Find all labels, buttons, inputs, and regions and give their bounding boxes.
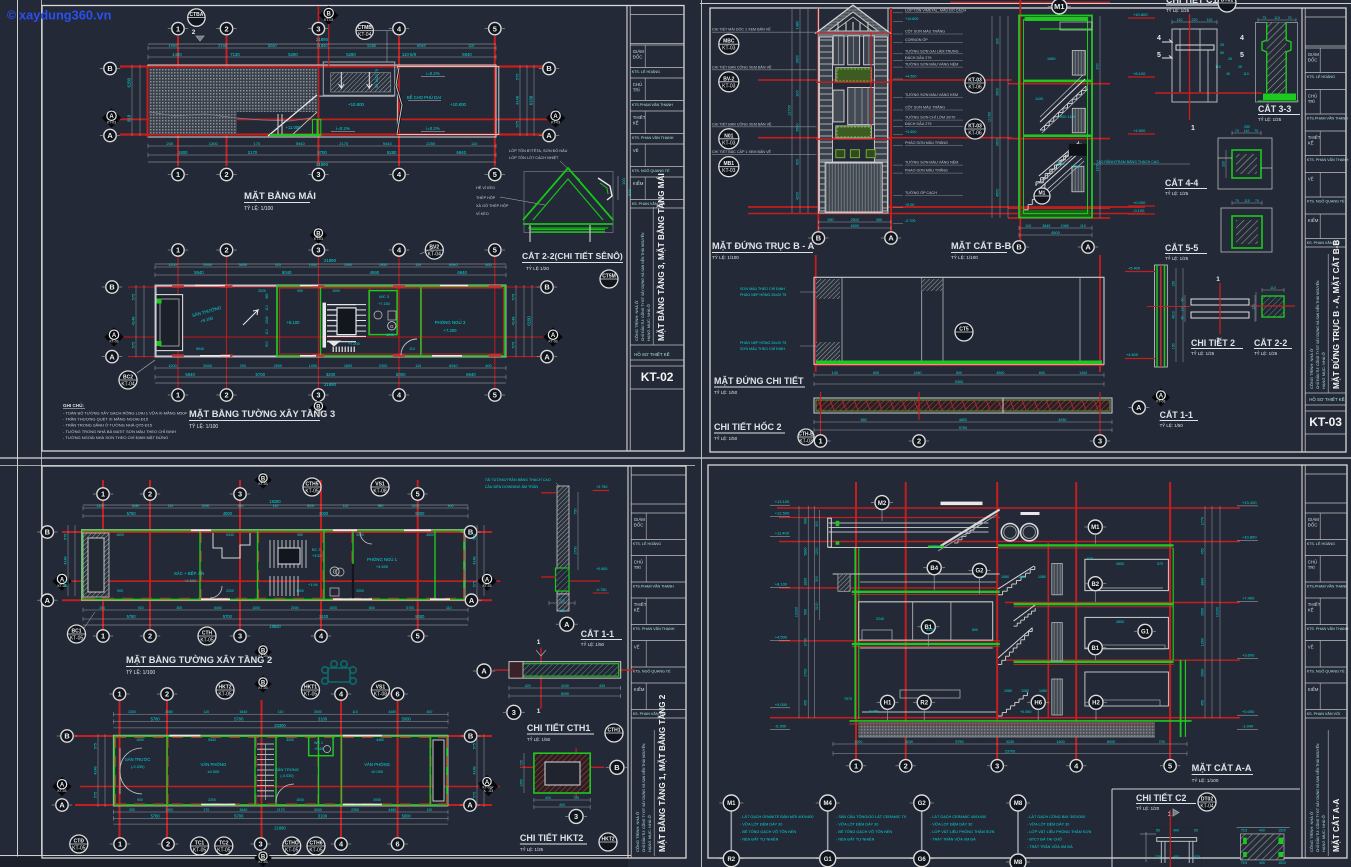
svg-text:600: 600 <box>369 606 375 610</box>
svg-text:5780: 5780 <box>151 716 161 721</box>
svg-text:2500: 2500 <box>274 364 282 368</box>
svg-text:VẼ: VẼ <box>633 148 639 153</box>
svg-text:3000: 3000 <box>314 710 322 714</box>
svg-text:980: 980 <box>265 293 269 299</box>
svg-text:21890: 21890 <box>274 826 286 831</box>
svg-text:70: 70 <box>1235 129 1239 133</box>
svg-text:TC1: TC1 <box>195 841 205 847</box>
svg-text:CỘT SƠN MÀU TRẮNG: CỘT SƠN MÀU TRẮNG <box>905 105 945 110</box>
svg-text:5000: 5000 <box>402 716 412 721</box>
svg-text:- BÊ TÔNG GẠCH VỠ TÔN NỀN: - BÊ TÔNG GẠCH VỠ TÔN NỀN <box>740 829 797 834</box>
svg-text:1080: 1080 <box>1038 575 1046 579</box>
svg-text:B: B <box>64 732 69 741</box>
svg-text:5940: 5940 <box>194 270 204 275</box>
svg-text:CHỦ: CHỦ <box>1308 560 1318 565</box>
svg-text:CÔNG TRÌNH: NHÀ Ở: CÔNG TRÌNH: NHÀ Ở <box>1309 811 1314 852</box>
svg-text:ĐÁCH DẦU 279: ĐÁCH DẦU 279 <box>905 122 931 126</box>
svg-text:220: 220 <box>1222 161 1226 167</box>
svg-text:CẮT 2-2(CHI TIẾT SÊNÔ): CẮT 2-2(CHI TIẾT SÊNÔ) <box>522 250 623 261</box>
svg-text:- VỮA LÓT ĐỆM DÀY 30: - VỮA LÓT ĐỆM DÀY 30 <box>836 822 878 827</box>
svg-text:1: 1 <box>537 708 541 715</box>
svg-text:575: 575 <box>511 293 516 300</box>
svg-text:HẠNG MỤC: NHÀ Ở: HẠNG MỤC: NHÀ Ở <box>646 303 651 341</box>
svg-text:PHAO SƠN MÀU TRẮNG: PHAO SƠN MÀU TRẮNG <box>905 168 948 173</box>
svg-text:4148: 4148 <box>131 316 136 326</box>
svg-text:110: 110 <box>1207 18 1213 22</box>
svg-text:3230: 3230 <box>1006 740 1014 744</box>
svg-text:- LÁT GẠCH GRANITE ĐẬM MỜI 400: - LÁT GẠCH GRANITE ĐẬM MỜI 400X400 <box>740 814 813 819</box>
svg-text:110: 110 <box>468 43 475 48</box>
svg-text:TỶ LỆ: 1/100: TỶ LỆ: 1/100 <box>189 422 218 430</box>
svg-text:CẦU ĐÈN DOWNING ÂM TRẦN: CẦU ĐÈN DOWNING ÂM TRẦN <box>485 484 539 489</box>
svg-text:110: 110 <box>559 609 565 613</box>
svg-text:110: 110 <box>471 141 478 146</box>
svg-text:KTS.PHẠM VĂN THẠNH: KTS.PHẠM VĂN THẠNH <box>633 585 674 589</box>
svg-text:2020: 2020 <box>258 289 266 293</box>
svg-text:575: 575 <box>473 581 477 587</box>
svg-text:PHÒNG NGỦ 3: PHÒNG NGỦ 3 <box>435 320 466 325</box>
svg-text:1: 1 <box>1216 276 1220 283</box>
svg-text:+4.500: +4.500 <box>905 75 916 79</box>
svg-text:5280: 5280 <box>288 52 298 57</box>
svg-text:4: 4 <box>1240 35 1244 42</box>
svg-text:5440: 5440 <box>240 710 248 714</box>
svg-text:B: B <box>327 11 332 17</box>
svg-text:300: 300 <box>815 521 819 527</box>
svg-text:25: 25 <box>1220 43 1224 47</box>
svg-text:TRÌ: TRÌ <box>1308 99 1315 104</box>
svg-text:980: 980 <box>297 533 303 537</box>
svg-text:2075: 2075 <box>1056 162 1064 166</box>
svg-text:500: 500 <box>932 545 938 549</box>
svg-text:400: 400 <box>1173 855 1179 859</box>
svg-text:+3.600: +3.600 <box>1242 653 1255 658</box>
svg-text:+4.500: +4.500 <box>1133 128 1146 133</box>
svg-text:3000: 3000 <box>319 511 329 516</box>
svg-text:2300: 2300 <box>379 364 387 368</box>
svg-text:1950: 1950 <box>379 263 387 267</box>
svg-text:600: 600 <box>956 371 962 375</box>
svg-text:3: 3 <box>238 632 242 641</box>
svg-text:818: 818 <box>127 114 132 122</box>
svg-text:-0.100: -0.100 <box>1133 208 1145 213</box>
svg-text:750: 750 <box>574 509 578 515</box>
svg-text:13100: 13100 <box>1216 607 1220 617</box>
svg-text:200: 200 <box>166 141 173 146</box>
svg-text:2: 2 <box>165 690 169 699</box>
svg-text:+13.100: +13.100 <box>775 499 790 504</box>
svg-text:CTĐ: CTĐ <box>74 839 85 845</box>
svg-text:TƯỜNG SƠN GAI LÀM TRỤNG: TƯỜNG SƠN GAI LÀM TRỤNG <box>905 48 959 53</box>
svg-text:5000: 5000 <box>415 511 425 516</box>
svg-text:150: 150 <box>1172 343 1176 349</box>
svg-text:5: 5 <box>416 490 420 499</box>
svg-text:HẠNG MỤC: NHÀ Ở: HẠNG MỤC: NHÀ Ở <box>647 814 652 852</box>
svg-text:430: 430 <box>599 684 605 688</box>
svg-text:+12.500: +12.500 <box>775 510 790 515</box>
svg-text:170: 170 <box>203 808 209 812</box>
svg-text:110: 110 <box>427 808 433 812</box>
svg-text:KT-02: KT-02 <box>641 370 674 384</box>
svg-text:3: 3 <box>316 246 320 255</box>
svg-text:4500: 4500 <box>223 511 233 516</box>
svg-text:- TRÁT TRẦN VỮA XM ĐÁ: - TRÁT TRẦN VỮA XM ĐÁ <box>930 837 976 842</box>
svg-text:KTS.PHẠM VĂN THẠNH: KTS.PHẠM VĂN THẠNH <box>1307 117 1348 121</box>
svg-text:N01: N01 <box>724 133 733 139</box>
svg-text:+5.400: +5.400 <box>1128 266 1141 271</box>
svg-text:3030: 3030 <box>905 740 913 744</box>
svg-text:+8.100: +8.100 <box>1133 71 1146 76</box>
svg-text:+3.52: +3.52 <box>312 554 322 558</box>
svg-text:CẮT 1-1: CẮT 1-1 <box>581 629 614 639</box>
svg-text:CHỦ ĐẦU TƯ: CÔNG TY ĐT XÂY DỰN: CHỦ ĐẦU TƯ: CÔNG TY ĐT XÂY DỰNG VÀ SAN N… <box>641 743 646 852</box>
svg-text:575: 575 <box>64 581 68 587</box>
svg-text:1100: 1100 <box>1096 164 1100 172</box>
svg-text:6940: 6940 <box>462 52 472 57</box>
svg-text:500: 500 <box>627 189 632 196</box>
svg-text:A: A <box>1085 243 1091 252</box>
svg-text:LỚP TÔN LÓT CÁCH NHIỆT: LỚP TÔN LÓT CÁCH NHIỆT <box>509 155 559 160</box>
svg-text:MẶT BẰNG TƯỜNG XÂY TẦNG 2: MẶT BẰNG TƯỜNG XÂY TẦNG 2 <box>126 654 272 665</box>
svg-text:- VỮA LÓT ĐỆM DÀY 30: - VỮA LÓT ĐỆM DÀY 30 <box>930 822 972 827</box>
svg-text:3000: 3000 <box>286 738 294 742</box>
svg-text:1: 1 <box>1191 125 1195 132</box>
svg-text:A: A <box>485 577 490 583</box>
svg-text:TC2: TC2 <box>219 841 229 847</box>
svg-text:VẼ: VẼ <box>634 645 640 650</box>
svg-text:CTH: CTH <box>202 631 213 637</box>
svg-text:- TƯỜNG TRONG NHÀ BẢ MATIT SƠN: - TƯỜNG TRONG NHÀ BẢ MATIT SƠN MÀU THEO … <box>63 429 176 434</box>
svg-text:M1: M1 <box>1039 191 1046 197</box>
svg-text:CHI TIẾT HỐC 2: CHI TIẾT HỐC 2 <box>714 421 782 432</box>
svg-text:- TRẦN THƯỢNG QUÉT XI MĂNG NGO: - TRẦN THƯỢNG QUÉT XI MĂNG NGOẠI Đ15 <box>63 417 149 422</box>
svg-text:CHỦ: CHỦ <box>633 82 643 87</box>
svg-text:575: 575 <box>473 792 477 798</box>
svg-text:KT-03: KT-03 <box>799 439 813 445</box>
svg-text:1980: 1980 <box>1047 57 1055 61</box>
svg-text:1080: 1080 <box>1001 575 1009 579</box>
svg-text:13100: 13100 <box>795 607 799 617</box>
svg-text:2190: 2190 <box>218 43 228 48</box>
svg-text:5700: 5700 <box>223 614 233 619</box>
svg-text:300: 300 <box>176 606 182 610</box>
svg-text:65: 65 <box>1220 51 1224 55</box>
svg-text:1900: 1900 <box>168 43 178 48</box>
svg-text:570: 570 <box>1087 557 1093 561</box>
svg-text:1: 1 <box>118 840 122 849</box>
svg-text:KIỂM: KIỂM <box>1308 218 1319 223</box>
svg-text:THIẾT: THIẾT <box>1308 602 1321 607</box>
svg-text:- VỮA LÓT ĐỆM DÀY 30: - VỮA LÓT ĐỆM DÀY 30 <box>1027 822 1069 827</box>
svg-text:MBC: MBC <box>723 39 735 45</box>
svg-text:+1.94: +1.94 <box>308 583 318 587</box>
svg-text:900: 900 <box>996 38 1000 44</box>
svg-text:TỶ LỆ: 1/20: TỶ LỆ: 1/20 <box>1136 806 1160 811</box>
svg-text:110: 110 <box>415 364 421 368</box>
svg-text:220: 220 <box>1252 304 1256 310</box>
svg-text:3: 3 <box>316 24 320 33</box>
svg-text:©: © <box>7 8 16 22</box>
svg-text:6: 6 <box>396 840 400 849</box>
svg-text:575: 575 <box>511 341 516 348</box>
svg-text:KT-05: KT-05 <box>217 848 231 854</box>
svg-text:3000: 3000 <box>307 504 315 508</box>
svg-text:HẠNG MỤC: NHÀ Ở: HẠNG MỤC: NHÀ Ở <box>1321 814 1326 852</box>
svg-text:XÀ GỒ THÉP HỘP: XÀ GỒ THÉP HỘP <box>476 203 509 208</box>
svg-text:+4.500: +4.500 <box>775 634 788 639</box>
svg-text:KT-03: KT-03 <box>551 121 560 125</box>
svg-text:HKT2: HKT2 <box>218 685 231 691</box>
svg-text:1600: 1600 <box>344 364 352 368</box>
svg-text:4480: 4480 <box>388 808 396 812</box>
svg-text:4550: 4550 <box>1116 562 1124 566</box>
svg-text:5: 5 <box>1240 52 1244 59</box>
svg-text:220: 220 <box>559 599 565 603</box>
svg-text:KT-03: KT-03 <box>1309 415 1342 429</box>
svg-text:4148: 4148 <box>515 95 520 105</box>
svg-text:4500: 4500 <box>850 224 858 228</box>
svg-text:KTS. NGÔ QUANG TẾ: KTS. NGÔ QUANG TẾ <box>633 669 671 674</box>
svg-text:1800: 1800 <box>804 578 808 586</box>
svg-text:CÔNG TRÌNH: NHÀ Ở: CÔNG TRÌNH: NHÀ Ở <box>1309 348 1314 389</box>
svg-text:B: B <box>109 283 114 292</box>
svg-text:1480: 1480 <box>796 21 800 29</box>
svg-text:GIÁM: GIÁM <box>1308 517 1320 522</box>
svg-text:TỶ LỆ: 1/50: TỶ LỆ: 1/50 <box>527 737 551 742</box>
svg-text:400: 400 <box>485 263 491 267</box>
svg-text:4148: 4148 <box>473 766 477 774</box>
svg-text:G2: G2 <box>918 801 927 807</box>
svg-text:A: A <box>109 352 115 361</box>
svg-text:6150: 6150 <box>527 316 532 326</box>
svg-text:4148: 4148 <box>511 316 516 326</box>
svg-text:575: 575 <box>64 534 68 540</box>
svg-text:KT-03: KT-03 <box>258 686 267 690</box>
svg-text:110: 110 <box>278 710 284 714</box>
svg-text:110: 110 <box>1274 16 1280 20</box>
svg-text:G6: G6 <box>918 857 927 863</box>
svg-text:KT-03: KT-03 <box>968 124 982 130</box>
svg-text:CORNON ỐP: CORNON ỐP <box>905 37 928 42</box>
svg-text:THIẾT: THIẾT <box>1308 135 1321 140</box>
svg-text:KIỂM: KIỂM <box>634 687 645 692</box>
svg-text:400: 400 <box>448 504 454 508</box>
svg-text:600: 600 <box>972 628 978 632</box>
svg-text:9760: 9760 <box>959 426 967 430</box>
svg-text:HỆ VÌ KÈO: HỆ VÌ KÈO <box>476 185 495 190</box>
svg-text:+0.600: +0.600 <box>596 567 607 571</box>
svg-text:CHỦ ĐẦU TƯ: CÔNG TY ĐT XÂY DỰN: CHỦ ĐẦU TƯ: CÔNG TY ĐT XÂY DỰNG VÀ SAN N… <box>640 232 645 341</box>
svg-text:1: 1 <box>176 246 180 255</box>
svg-text:6940: 6940 <box>449 263 457 267</box>
svg-text:350: 350 <box>876 218 882 222</box>
svg-text:2240: 2240 <box>876 617 884 621</box>
svg-text:PHÀO SƠN MÀU TRẮNG: PHÀO SƠN MÀU TRẮNG <box>905 140 948 145</box>
svg-text:4148: 4148 <box>94 766 98 774</box>
svg-text:5: 5 <box>493 24 497 33</box>
svg-text:4240: 4240 <box>561 684 569 688</box>
svg-text:-0.750: -0.750 <box>596 588 606 592</box>
svg-text:KT-03: KT-03 <box>482 786 491 790</box>
svg-text:KT-03: KT-03 <box>107 121 116 125</box>
svg-text:VẼ: VẼ <box>1308 177 1314 182</box>
svg-text:M2: M2 <box>878 501 887 507</box>
svg-text:5800: 5800 <box>804 547 808 555</box>
svg-text:TỶ LỆ: 1/25: TỶ LỆ: 1/25 <box>1165 191 1189 196</box>
svg-text:5440: 5440 <box>208 738 216 742</box>
svg-text:4200: 4200 <box>796 192 800 200</box>
svg-text:1000: 1000 <box>296 798 304 802</box>
svg-text:2170: 2170 <box>277 808 285 812</box>
svg-text:6: 6 <box>396 690 400 699</box>
svg-text:CẮT 5-5: CẮT 5-5 <box>1165 243 1198 253</box>
svg-text:5: 5 <box>1168 761 1172 770</box>
svg-text:110: 110 <box>352 710 358 714</box>
svg-text:3100: 3100 <box>319 614 329 619</box>
svg-text:PHÀO NẸP HỒNG 20x20 T5: PHÀO NẸP HỒNG 20x20 T5 <box>740 292 786 297</box>
svg-text:40: 40 <box>1226 72 1230 76</box>
svg-text:KẾ: KẾ <box>633 121 639 126</box>
svg-text:725: 725 <box>573 796 579 800</box>
svg-text:KT-03: KT-03 <box>258 860 267 864</box>
svg-text:- TRẦN TRONG SẢNH Ở TƯỜNG NHÀ: - TRẦN TRONG SẢNH Ở TƯỜNG NHÀ QY5 Đ15 <box>63 423 153 428</box>
svg-text:12700: 12700 <box>788 105 792 116</box>
svg-text:3000: 3000 <box>314 808 322 812</box>
svg-text:4500: 4500 <box>996 371 1004 375</box>
svg-text:2: 2 <box>224 170 228 179</box>
svg-text:KT-06: KT-06 <box>968 85 982 91</box>
svg-text:2: 2 <box>148 490 152 499</box>
svg-text:110: 110 <box>409 347 415 351</box>
svg-text:B: B <box>107 64 112 73</box>
svg-text:+7.150: +7.150 <box>378 302 390 306</box>
svg-text:KT-03: KT-03 <box>722 168 736 174</box>
svg-text:110: 110 <box>1244 199 1250 203</box>
svg-text:- NỀN ĐẤT TỰ NHIÊN: - NỀN ĐẤT TỰ NHIÊN <box>740 837 779 842</box>
svg-text:75: 75 <box>1262 16 1266 20</box>
svg-text:400: 400 <box>426 710 432 714</box>
svg-text:KIỂM: KIỂM <box>633 181 644 186</box>
svg-text:VĂN PHÒNG: VĂN PHÒNG <box>364 762 390 767</box>
svg-text:7130: 7130 <box>230 52 240 57</box>
svg-text:+3.750: +3.750 <box>596 485 607 489</box>
svg-text:TỶ LỆ: 1/25: TỶ LỆ: 1/25 <box>1165 256 1189 261</box>
svg-text:TRÌ: TRÌ <box>634 565 641 570</box>
svg-text:110: 110 <box>1080 224 1086 228</box>
svg-text:TỶ LỆ: 1/100: TỶ LỆ: 1/100 <box>951 253 978 260</box>
svg-text:1500: 1500 <box>136 738 144 742</box>
svg-text:4: 4 <box>1157 35 1161 42</box>
svg-text:23700: 23700 <box>1005 749 1016 753</box>
svg-text:600: 600 <box>1039 371 1045 375</box>
svg-text:+10.800: +10.800 <box>1133 12 1148 17</box>
svg-text:TỶ LỆ: 1/50: TỶ LỆ: 1/50 <box>581 642 605 647</box>
svg-text:- BÊ TÔNG GẠCH VỠ TÔN NỀN: - BÊ TÔNG GẠCH VỠ TÔN NỀN <box>836 829 893 834</box>
svg-text:TỶ LỆ: 1/25: TỶ LỆ: 1/25 <box>1166 8 1190 13</box>
svg-text:KT-06: KT-06 <box>968 131 982 137</box>
svg-text:CHI TIẾT BAN CÔNG XEM BẢN VẼ: CHI TIẾT BAN CÔNG XEM BẢN VẼ <box>712 121 772 126</box>
svg-text:CHI TIẾT BAN CÔNG XEM BẢN VẼ: CHI TIẾT BAN CÔNG XEM BẢN VẼ <box>712 64 772 69</box>
svg-text:KTS. NGÔ QUANG TẾ: KTS. NGÔ QUANG TẾ <box>1307 669 1345 674</box>
svg-text:75.5: 75.5 <box>1241 829 1248 833</box>
svg-text:3500: 3500 <box>1201 669 1205 677</box>
svg-text:3: 3 <box>995 761 999 770</box>
svg-text:CTH1: CTH1 <box>607 728 620 734</box>
svg-text:4550: 4550 <box>1116 620 1124 624</box>
svg-text:2200: 2200 <box>208 798 216 802</box>
svg-text:+0.45: +0.45 <box>314 747 323 751</box>
svg-text:420: 420 <box>525 684 531 688</box>
svg-text:KT-03: KT-03 <box>548 340 557 344</box>
svg-text:B: B <box>816 234 821 243</box>
svg-text:M8: M8 <box>1014 860 1023 866</box>
svg-text:450: 450 <box>1201 700 1205 706</box>
svg-text:6940: 6940 <box>466 372 476 377</box>
svg-text:KTS. LÊ HOÀNG: KTS. LÊ HOÀNG <box>633 541 661 546</box>
svg-text:5940: 5940 <box>203 364 211 368</box>
svg-text:5700: 5700 <box>234 813 244 818</box>
svg-text:TỶ LỆ: 1/100: TỶ LỆ: 1/100 <box>1192 776 1219 783</box>
svg-text:220: 220 <box>1192 18 1198 22</box>
svg-text:TÁI TƯỜNG/TRẦN BẰNG THẠCH CAO: TÁI TƯỜNG/TRẦN BẰNG THẠCH CAO <box>485 477 551 482</box>
svg-text:110: 110 <box>1244 129 1250 133</box>
svg-text:-1.040: -1.040 <box>1242 724 1254 729</box>
svg-text:6940: 6940 <box>457 270 467 275</box>
svg-text:TỶ LỆ: 1/100: TỶ LỆ: 1/100 <box>712 253 739 260</box>
svg-text:KT-04: KT-04 <box>358 32 372 38</box>
svg-text:GIÁM: GIÁM <box>633 49 645 54</box>
svg-text:5940: 5940 <box>185 372 195 377</box>
svg-text:1065: 1065 <box>1061 224 1069 228</box>
svg-text:2000: 2000 <box>373 798 381 802</box>
svg-text:+11.400: +11.400 <box>775 531 790 536</box>
svg-text:A: A <box>60 783 65 789</box>
svg-text:xaydung360.vn: xaydung360.vn <box>19 8 112 23</box>
svg-text:900: 900 <box>137 798 143 802</box>
svg-text:CT5M: CT5M <box>602 274 616 280</box>
svg-text:1800: 1800 <box>1201 578 1205 586</box>
svg-text:-0.700: -0.700 <box>905 219 915 223</box>
svg-text:BC1: BC1 <box>71 629 81 635</box>
svg-text:+10.800: +10.800 <box>348 102 365 107</box>
svg-text:110: 110 <box>1270 286 1276 290</box>
svg-text:SƠN MÀU THEO CHỈ ĐỊNH: SƠN MÀU THEO CHỈ ĐỊNH <box>740 346 785 351</box>
svg-text:MẶT CẮT A-A: MẶT CẮT A-A <box>1192 763 1252 773</box>
svg-text:±0.000: ±0.000 <box>371 769 384 774</box>
svg-text:4480: 4480 <box>388 710 396 714</box>
svg-text:CHỦ: CHỦ <box>634 560 644 565</box>
svg-text:M1: M1 <box>1091 525 1100 531</box>
svg-text:ĐỐC: ĐỐC <box>634 523 644 528</box>
svg-text:+0.000: +0.000 <box>1133 200 1146 205</box>
svg-text:G1: G1 <box>1141 629 1150 635</box>
svg-text:- LỚP VẬT LIỆU PHÒNG THẤM SƠN: - LỚP VẬT LIỆU PHÒNG THẤM SƠN <box>1027 829 1092 834</box>
svg-text:1: 1 <box>176 170 180 179</box>
svg-text:TẠO RÃNH/TRÁM BẰNG THẠCH CAO: TẠO RÃNH/TRÁM BẰNG THẠCH CAO <box>1096 159 1159 164</box>
svg-text:5940: 5940 <box>196 347 204 351</box>
svg-text:575: 575 <box>131 293 136 300</box>
svg-text:3600: 3600 <box>796 123 800 131</box>
svg-text:1100: 1100 <box>1035 97 1043 101</box>
svg-text:M8: M8 <box>1014 801 1023 807</box>
svg-text:2: 2 <box>166 840 170 849</box>
svg-text:MẶT CẮT B-B: MẶT CẮT B-B <box>951 241 1012 251</box>
svg-text:CT5: CT5 <box>959 327 969 333</box>
svg-text:400: 400 <box>545 796 551 800</box>
svg-text:21890: 21890 <box>316 43 328 48</box>
svg-text:200: 200 <box>129 808 135 812</box>
svg-text:KẾ: KẾ <box>1308 608 1314 613</box>
